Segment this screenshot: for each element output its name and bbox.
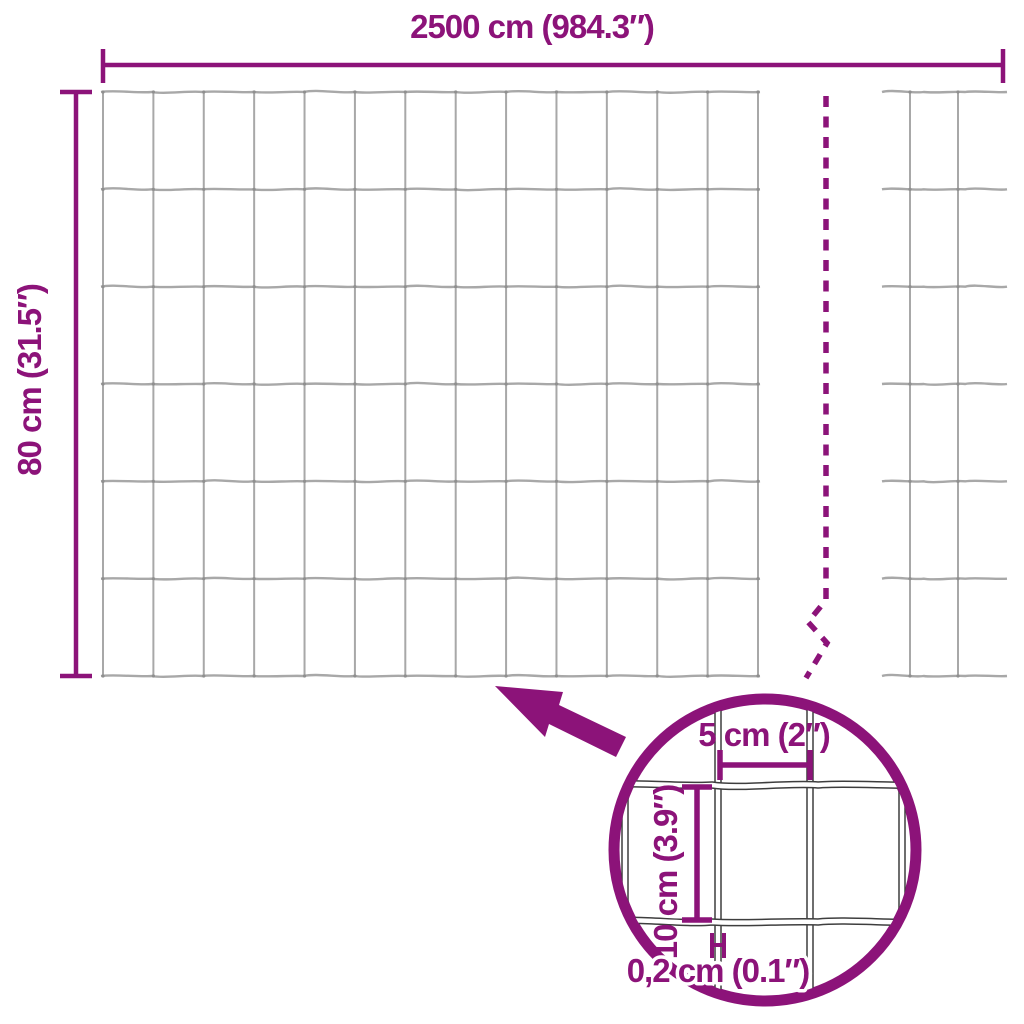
wire-joint xyxy=(706,480,709,483)
wire-joint xyxy=(956,90,959,93)
wire-joint xyxy=(253,480,256,483)
wire-joint xyxy=(353,480,356,483)
wire-joint xyxy=(656,577,659,580)
wire-joint xyxy=(202,577,205,580)
horizontal-wire xyxy=(101,675,760,677)
wire-joint xyxy=(504,188,507,191)
wire-joint xyxy=(956,577,959,580)
dimension-total-width: 2500 cm (984.3″) xyxy=(103,8,1003,83)
horizontal-wire xyxy=(882,383,1007,385)
wire-joint xyxy=(404,480,407,483)
wire-joint xyxy=(656,674,659,677)
wire-joint xyxy=(303,90,306,93)
wire-joint xyxy=(202,674,205,677)
wire-joint xyxy=(706,674,709,677)
wire-joint xyxy=(555,382,558,385)
horizontal-wire xyxy=(101,286,760,288)
wire-joint xyxy=(706,90,709,93)
wire-joint xyxy=(253,577,256,580)
break-line xyxy=(806,96,827,678)
wire-joint xyxy=(253,674,256,677)
wire-thickness-label: 0,2 cm (0.1″) xyxy=(627,952,810,989)
wire-joint xyxy=(756,90,759,93)
wire-joint xyxy=(253,285,256,288)
wire-joint xyxy=(956,674,959,677)
horizontal-wire xyxy=(882,91,1007,92)
wire-joint xyxy=(253,188,256,191)
horizontal-wire xyxy=(101,91,760,93)
wire-joint xyxy=(152,90,155,93)
wire-joint xyxy=(353,577,356,580)
wire-joint xyxy=(353,188,356,191)
mesh-height-label: 10 cm (3.9″) xyxy=(647,785,684,959)
horizontal-wire xyxy=(882,578,1007,580)
wire-joint xyxy=(202,90,205,93)
wire-joint xyxy=(504,480,507,483)
horizontal-wire xyxy=(882,481,1007,483)
wire-joint xyxy=(605,285,608,288)
wire-joint xyxy=(605,188,608,191)
wire-joint xyxy=(656,382,659,385)
wire-joint xyxy=(454,577,457,580)
wire-joint xyxy=(202,480,205,483)
horizontal-wire xyxy=(882,286,1007,288)
wire-joint xyxy=(303,577,306,580)
wire-joint xyxy=(956,382,959,385)
wire-joint xyxy=(555,480,558,483)
wire-joint xyxy=(908,188,911,191)
wire-joint xyxy=(504,577,507,580)
wire-joint xyxy=(605,577,608,580)
wire-joint xyxy=(152,674,155,677)
wire-joint xyxy=(756,285,759,288)
wire-joint xyxy=(353,382,356,385)
dimension-total-height: 80 cm (31.5″) xyxy=(11,92,92,676)
wire-joint xyxy=(353,90,356,93)
wire-joint xyxy=(101,188,104,191)
wire-joint xyxy=(956,188,959,191)
wire-joint xyxy=(908,674,911,677)
wire-joint xyxy=(656,285,659,288)
wire-joint xyxy=(756,577,759,580)
wire-joint xyxy=(656,188,659,191)
wire-joint xyxy=(656,480,659,483)
wire-joint xyxy=(404,188,407,191)
wire-joint xyxy=(303,188,306,191)
wire-joint xyxy=(756,674,759,677)
wire-joint xyxy=(404,382,407,385)
wire-joint xyxy=(152,577,155,580)
wire-joint xyxy=(202,382,205,385)
wire-joint xyxy=(656,90,659,93)
wire-joint xyxy=(101,480,104,483)
wire-joint xyxy=(454,382,457,385)
wire-joint xyxy=(908,577,911,580)
wire-joint xyxy=(101,382,104,385)
wire-joint xyxy=(605,674,608,677)
wire-joint xyxy=(605,90,608,93)
wire-joint xyxy=(152,285,155,288)
wire-joint xyxy=(605,480,608,483)
wire-joint xyxy=(756,480,759,483)
wire-joint xyxy=(253,90,256,93)
wire-joint xyxy=(756,382,759,385)
wire-joint xyxy=(404,90,407,93)
wire-joint xyxy=(303,480,306,483)
wire-joint xyxy=(908,382,911,385)
wire-joint xyxy=(101,674,104,677)
wire-joint xyxy=(454,480,457,483)
wire-joint xyxy=(303,382,306,385)
horizontal-wire xyxy=(882,188,1007,189)
wire-joint xyxy=(706,577,709,580)
wire-joint xyxy=(353,674,356,677)
horizontal-wire xyxy=(101,383,760,385)
wire-joint xyxy=(908,90,911,93)
mesh-width-label: 5 cm (2″) xyxy=(698,716,830,753)
magnifier-detail: 5 cm (2″) 10 cm (3.9″) 0,2 cm (0.1″) xyxy=(606,690,924,1010)
wire-joint xyxy=(504,90,507,93)
wire-joint xyxy=(504,285,507,288)
wire-joint xyxy=(605,382,608,385)
wire-joint xyxy=(555,188,558,191)
wire-joint xyxy=(555,674,558,677)
wire-joint xyxy=(152,480,155,483)
wire-joint xyxy=(555,577,558,580)
wire-joint xyxy=(504,382,507,385)
wire-joint xyxy=(454,285,457,288)
fence-panel-continuation xyxy=(882,90,1007,677)
wire-joint xyxy=(454,90,457,93)
wire-joint xyxy=(555,90,558,93)
wire-joint xyxy=(404,577,407,580)
wire-joint xyxy=(706,188,709,191)
wire-joint xyxy=(101,577,104,580)
wire-joint xyxy=(101,285,104,288)
wire-joint xyxy=(908,480,911,483)
wire-joint xyxy=(152,188,155,191)
wire-joint xyxy=(454,188,457,191)
fence-dimension-diagram: 2500 cm (984.3″) 80 cm (31.5″) 5 cm (2″)… xyxy=(0,0,1024,1024)
wire-joint xyxy=(253,382,256,385)
wire-joint xyxy=(706,285,709,288)
wire-joint xyxy=(908,285,911,288)
wire-joint xyxy=(454,674,457,677)
wire-joint xyxy=(303,285,306,288)
zoom-arrow-icon xyxy=(495,686,626,757)
wire-joint xyxy=(956,285,959,288)
horizontal-wire xyxy=(101,578,760,580)
horizontal-wire xyxy=(882,675,1007,677)
wire-joint xyxy=(152,382,155,385)
wire-joint xyxy=(706,382,709,385)
wire-joint xyxy=(303,674,306,677)
wire-joint xyxy=(353,285,356,288)
wire-joint xyxy=(756,188,759,191)
wire-joint xyxy=(504,674,507,677)
wire-joint xyxy=(404,285,407,288)
horizontal-wire xyxy=(101,188,760,190)
horizontal-wire xyxy=(101,480,760,482)
total-width-label: 2500 cm (984.3″) xyxy=(410,8,654,45)
wire-joint xyxy=(202,285,205,288)
wire-joint xyxy=(956,480,959,483)
total-height-label: 80 cm (31.5″) xyxy=(11,284,48,476)
fence-panel-main xyxy=(101,90,760,677)
wire-joint xyxy=(101,90,104,93)
diagram-svg: 2500 cm (984.3″) 80 cm (31.5″) 5 cm (2″)… xyxy=(0,0,1024,1024)
wire-joint xyxy=(555,285,558,288)
wire-joint xyxy=(202,188,205,191)
wire-joint xyxy=(404,674,407,677)
